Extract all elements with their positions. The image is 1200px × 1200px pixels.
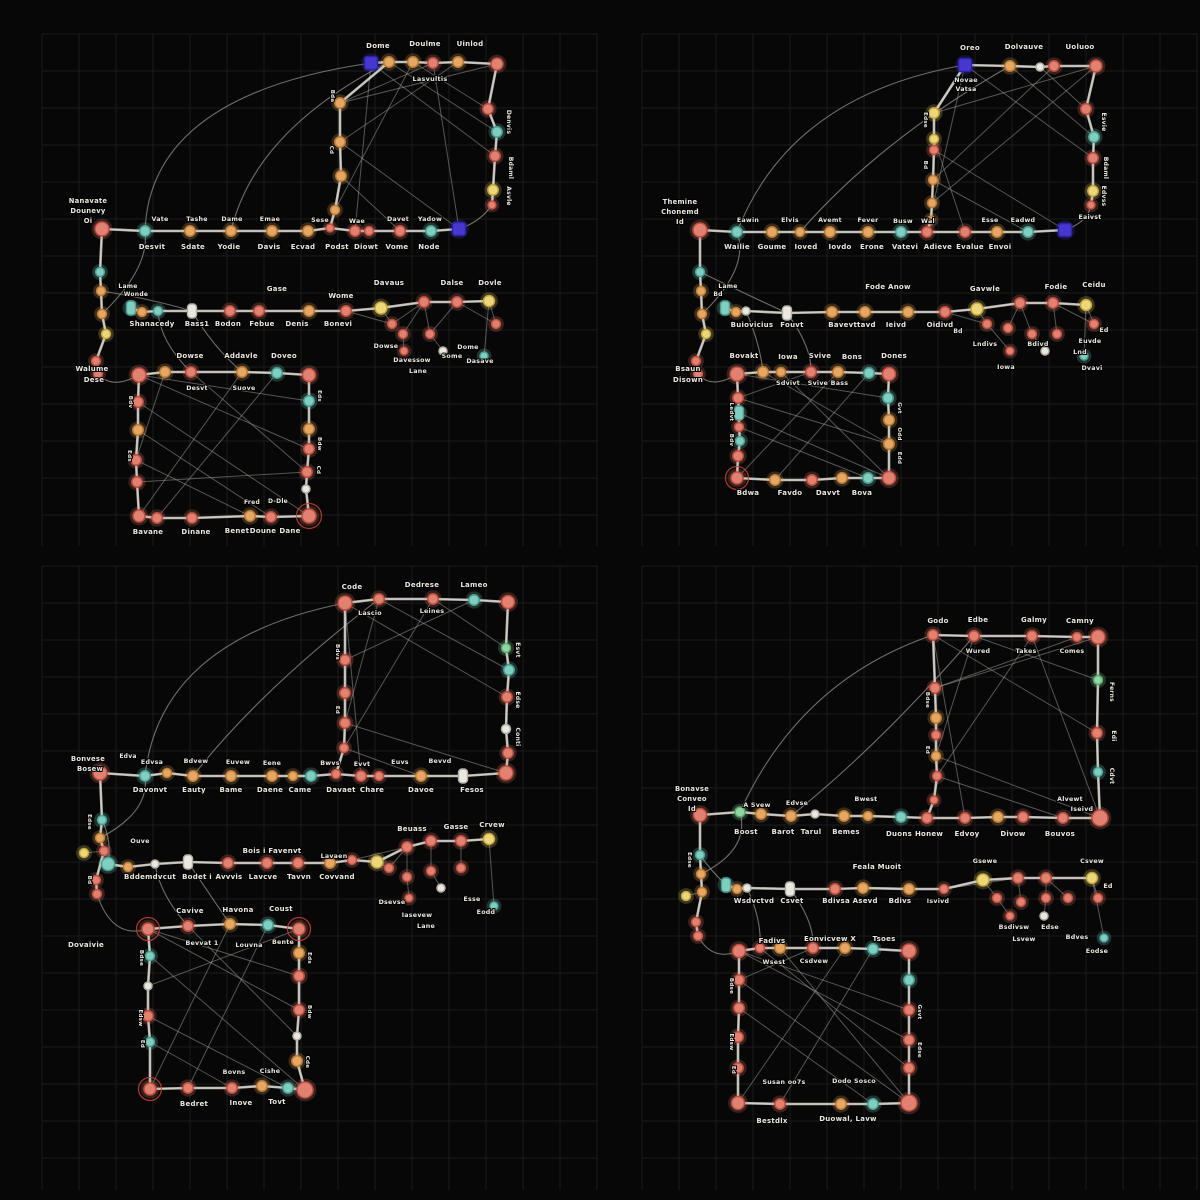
node-label: Some (442, 353, 463, 360)
station-node (399, 330, 408, 339)
station-node (227, 1083, 237, 1093)
node-label: Emae (260, 216, 280, 223)
station-node (133, 510, 145, 522)
node-label: Bavevttavd (828, 321, 875, 329)
station-node (896, 812, 906, 822)
station-node (294, 1005, 304, 1015)
node-label: Sdate (181, 243, 205, 251)
node-label: Sese (311, 217, 329, 224)
node-label: Bodet i (182, 873, 212, 881)
node-label: Chare (360, 786, 384, 794)
station-node (736, 437, 745, 446)
station-node (186, 367, 196, 377)
station-node-pill (188, 304, 197, 318)
node-label: Dounevy (70, 207, 106, 215)
node-label: Dodo Sosco (832, 1078, 876, 1085)
node-label: Odd (896, 427, 902, 440)
node-label: Cishe (260, 1068, 281, 1075)
node-label: Bd (86, 876, 92, 885)
node-label: Gvt (896, 402, 902, 414)
node-label: Bame (219, 786, 242, 794)
node-label: Vome (386, 243, 409, 251)
node-label: Bd (713, 291, 722, 298)
node-label: Esse (463, 896, 480, 903)
station-node (904, 884, 914, 894)
station-node (858, 883, 868, 893)
node-label: Divow (1000, 830, 1026, 838)
station-node (896, 227, 906, 237)
node-label: Gsvt (916, 1004, 922, 1019)
station-node (303, 369, 316, 382)
station-node (756, 809, 766, 819)
station-node (931, 713, 941, 723)
station-node (374, 594, 384, 604)
station-node (335, 137, 345, 147)
station-node (929, 176, 938, 185)
node-label: Isvivd (927, 898, 949, 905)
station-node (225, 919, 235, 929)
station-node (696, 268, 705, 277)
station-node (294, 971, 304, 981)
node-label: Nanavate (69, 197, 108, 205)
station-node (144, 982, 152, 990)
node-label: Bdivd (1027, 341, 1048, 348)
node-label: Envoi (989, 243, 1012, 251)
node-label: Dinane (181, 528, 210, 536)
node-label: Lame (718, 283, 737, 290)
station-node (226, 226, 236, 236)
node-label: Boost (734, 828, 758, 836)
node-label: Lasvultis (413, 75, 448, 83)
node-label: Bddemdvcut (124, 873, 176, 881)
station-node (226, 771, 236, 781)
node-label: Dsevse (379, 899, 406, 906)
node-label: Gasse (444, 823, 469, 831)
node-label: Eaivst (1078, 214, 1101, 221)
station-node (960, 813, 970, 823)
station-node (732, 308, 741, 317)
node-label: Bdw (316, 437, 322, 451)
node-label: Desvit (139, 243, 166, 251)
station-node (384, 57, 394, 67)
panel-bottom-left: CodeDedreseLameoLascioLeinesEsvtEdseCont… (42, 566, 598, 1190)
station-node (492, 127, 502, 137)
station-node (453, 57, 463, 67)
station-node (698, 888, 707, 897)
station-node (502, 692, 512, 702)
station-node (488, 185, 498, 195)
station-node (692, 918, 701, 927)
node-label: Bavane (133, 528, 164, 536)
station-node (733, 393, 743, 403)
node-label: Barot (772, 828, 795, 836)
station-node (860, 307, 870, 317)
node-label: A Svew (743, 802, 770, 809)
node-label: Godo (927, 617, 948, 625)
station-node (864, 812, 873, 821)
node-label: Svive (809, 352, 832, 360)
station-node (503, 748, 513, 758)
node-label: Bosew (77, 765, 104, 773)
station-node (257, 1081, 267, 1091)
station-node (734, 1003, 744, 1013)
station-node (469, 595, 479, 605)
node-label: Id (688, 805, 696, 813)
station-node (922, 813, 932, 823)
station-node (154, 307, 163, 316)
station-node (405, 894, 413, 902)
node-label: Fred (244, 499, 260, 506)
station-node (400, 347, 408, 355)
node-label: Bdivs (889, 897, 912, 905)
station-node-pill (735, 406, 744, 420)
station-node (1094, 768, 1103, 777)
node-label: Eodse (1086, 948, 1108, 955)
node-label: Evvt (354, 761, 371, 768)
node-label: Duons (886, 830, 912, 838)
station-node (304, 306, 314, 316)
node-label: Yodie (217, 243, 241, 251)
node-label: Fode Anow (865, 283, 911, 291)
station-node (777, 368, 786, 377)
node-label: Davvt (816, 489, 841, 497)
station-node-pill (783, 306, 792, 320)
station-node (428, 58, 438, 68)
grid-lines (642, 34, 1198, 546)
node-label: Dome (366, 42, 390, 50)
station-node (457, 864, 466, 873)
node-label: Fouvt (780, 321, 804, 329)
station-node (993, 894, 1002, 903)
node-label: Esse (981, 217, 998, 224)
node-label: Dese (84, 376, 104, 384)
node-label: Alvewt (1057, 796, 1083, 803)
node-label: Iovdo (828, 243, 851, 251)
node-label: Busw (893, 218, 913, 225)
station-node (146, 952, 155, 961)
station-node (730, 367, 744, 381)
node-label: Lndivs (973, 341, 998, 348)
node-label: Vatsa (955, 86, 976, 93)
station-node-pill (786, 882, 795, 896)
node-label: Tavvn (287, 873, 311, 881)
node-label: Cavive (176, 907, 204, 915)
node-label: Edvss (1100, 186, 1107, 207)
node-label: Duowal, Lavw (819, 1115, 877, 1123)
station-node (504, 665, 514, 675)
node-label: Bonvese (71, 755, 105, 763)
station-node (293, 1032, 301, 1040)
node-label: Ceidu (1082, 281, 1106, 289)
station-node (903, 307, 913, 317)
node-label: Goume (758, 243, 787, 251)
station-node (502, 644, 511, 653)
station-node (402, 842, 412, 852)
node-label: Fadivs (759, 937, 786, 945)
station-node (732, 227, 742, 237)
station-node (833, 367, 843, 377)
node-label: Dame (221, 216, 242, 223)
station-node (1041, 873, 1051, 883)
station-node (1006, 912, 1014, 920)
station-node (901, 1095, 917, 1111)
node-label: Diowt (354, 243, 378, 251)
node-label: Doulme (409, 40, 441, 48)
station-node (263, 920, 273, 930)
station-node (223, 858, 233, 868)
node-label: Fesos (460, 786, 484, 794)
node-label: Edsw (728, 1033, 734, 1050)
node-label: Iasevew (402, 912, 433, 919)
node-label: Esvie (1100, 113, 1107, 132)
station-node (1087, 201, 1095, 209)
station-node (491, 58, 503, 70)
node-label: Edse (686, 852, 692, 868)
node-label: Lavcve (249, 873, 278, 881)
node-label: Bdse (728, 978, 734, 994)
node-label: Node (418, 243, 439, 251)
station-node (140, 226, 150, 236)
station-node (932, 731, 941, 740)
node-label: Ed (924, 746, 930, 754)
node-label: Bons (842, 353, 862, 361)
station-node (836, 1099, 846, 1109)
node-label: Wae (349, 218, 365, 225)
node-label: Euvs (391, 759, 409, 766)
node-label: Eds (126, 450, 132, 462)
node-label: Wsdvctvd (734, 897, 775, 905)
station-node (341, 306, 351, 316)
node-label: Febue (249, 320, 274, 328)
node-label: Sdvivt (776, 380, 800, 387)
station-node (302, 467, 312, 477)
station-node (303, 226, 313, 236)
station-node (98, 816, 107, 825)
station-node (733, 945, 746, 958)
station-node (304, 396, 314, 406)
node-label: Susan oo7s (763, 1079, 806, 1086)
station-node (403, 873, 412, 882)
station-node (864, 368, 874, 378)
station-node-square (959, 59, 972, 72)
station-node (140, 771, 150, 781)
station-node (426, 330, 435, 339)
panel-top-left: DomeDoulmeUinlodLasvultisNanavateDounevy… (42, 34, 598, 546)
station-node (993, 812, 1003, 822)
node-label: Csdvew (800, 958, 829, 965)
station-node (1040, 912, 1048, 920)
node-label: Edd (896, 452, 902, 464)
station-node (144, 1083, 156, 1095)
node-label: Conveo (677, 795, 707, 803)
station-node (933, 772, 942, 781)
station-node (904, 1005, 914, 1015)
station-node (1088, 186, 1098, 196)
station-node (930, 683, 940, 693)
station-node (348, 856, 357, 865)
nodes (88, 53, 506, 528)
node-label: Takes (1015, 648, 1036, 655)
station-node (340, 744, 349, 753)
station-node-pill (184, 855, 193, 869)
station-node (490, 151, 500, 161)
node-label: Id (676, 218, 684, 226)
node-label: Edi (1110, 730, 1117, 741)
station-node (682, 892, 691, 901)
node-label: Oreo (960, 44, 980, 52)
node-label: Favdo (778, 489, 803, 497)
station-node (93, 890, 102, 899)
node-label: Eene (263, 760, 281, 767)
station-node (304, 444, 314, 454)
node-label: Eonvicvew X (804, 935, 856, 943)
node-label: Eadwd (1011, 217, 1036, 224)
node-label: Suove (233, 385, 256, 392)
station-node (1090, 320, 1099, 329)
node-label: Oidivd (927, 321, 954, 329)
edges (96, 62, 497, 518)
node-label: Bsaun (675, 365, 700, 373)
station-node (188, 771, 198, 781)
node-label: Bdivsa Asevd (822, 897, 878, 905)
station-node (138, 308, 147, 317)
node-label: Ecvad (291, 243, 315, 251)
node-label: Cd (315, 466, 321, 474)
station-node (143, 1011, 153, 1021)
station-node (426, 226, 436, 236)
node-label: Shanacedy (129, 320, 174, 328)
station-node (1094, 894, 1103, 903)
node-label: Davet (387, 216, 409, 223)
graph-canvas: DomeDoulmeUinlodLasvultisNanavateDounevy… (0, 0, 1200, 1200)
station-node (904, 1035, 914, 1045)
station-node (452, 297, 462, 307)
node-label: Bdvew (184, 758, 209, 765)
station-node (1091, 630, 1105, 644)
node-label: Lsvew (1012, 936, 1035, 943)
station-node (102, 330, 111, 339)
station-node-pill (721, 301, 730, 315)
station-node (839, 811, 849, 821)
node-label: Doune (250, 527, 277, 535)
station-node (1005, 61, 1015, 71)
node-label: Bente (272, 939, 294, 946)
node-label: Bass1 (185, 320, 210, 328)
station-node (969, 631, 979, 641)
node-label: Wured (966, 648, 991, 655)
station-node (1015, 298, 1025, 308)
node-label: Disown (673, 376, 703, 384)
station-node (484, 834, 495, 845)
station-node (395, 226, 405, 236)
node-label: Buiovicius (731, 321, 774, 329)
station-node-pill (722, 878, 731, 892)
station-node (786, 811, 796, 821)
station-node (1087, 873, 1098, 884)
station-node (1094, 676, 1103, 685)
station-node (697, 870, 706, 879)
node-label: Conti (514, 728, 521, 747)
node-label: Cdvt (1108, 768, 1115, 784)
node-label: Dowse (176, 352, 203, 360)
station-node (302, 485, 310, 493)
station-node (868, 944, 878, 954)
labels: CodeDedreseLameoLascioLeinesEsvtEdseCont… (68, 581, 521, 1108)
node-label: Edse (922, 112, 928, 128)
node-label: Lame (118, 283, 137, 290)
node-label: Daene (257, 786, 283, 794)
node-label: Csvew (1080, 858, 1104, 865)
station-node (743, 884, 751, 892)
node-label: Beuass (397, 825, 427, 833)
node-label: Dane (279, 527, 300, 535)
node-label: Davessow (393, 357, 431, 364)
station-node-pill (459, 769, 468, 783)
node-label: Dolvauve (1005, 43, 1044, 51)
station-node (293, 923, 305, 935)
station-node (484, 296, 495, 307)
station-node (796, 228, 805, 237)
node-label: Esvt (514, 642, 521, 657)
station-node (499, 766, 513, 780)
station-node (1004, 324, 1013, 333)
station-node (863, 473, 873, 483)
node-label: Louvna (235, 942, 262, 949)
station-node (1013, 873, 1023, 883)
node-label: Iowa (778, 353, 798, 361)
station-node (427, 867, 436, 876)
node-label: Bsdivsw (999, 924, 1030, 931)
station-node (365, 227, 374, 236)
station-node (733, 885, 742, 894)
node-label: Bdw (306, 1005, 312, 1019)
node-label: Edbe (968, 616, 989, 624)
station-node (868, 1099, 878, 1109)
node-label: Ed (1103, 883, 1112, 890)
station-node (340, 655, 350, 665)
node-label: Avvvis (216, 873, 243, 881)
station-node (971, 303, 983, 315)
node-label: Dasave (466, 358, 493, 365)
station-node (102, 858, 115, 871)
node-label: Denvis (505, 110, 512, 135)
station-node (336, 171, 346, 181)
node-label: Wsest (763, 959, 786, 966)
node-label: Benet (225, 527, 250, 535)
station-node (297, 1082, 313, 1098)
node-label: Bodon (215, 320, 241, 328)
node-label: Tsoes (873, 935, 896, 943)
station-node (697, 287, 706, 296)
station-node (183, 1083, 193, 1093)
node-label: Eauty (182, 786, 206, 794)
node-label: Dovaivie (68, 941, 104, 949)
node-label: Bda (329, 90, 335, 103)
node-label: Bd (953, 328, 962, 335)
station-node (385, 864, 394, 873)
station-node (825, 227, 835, 237)
node-label: Bdaml (1102, 157, 1109, 179)
station-node (98, 310, 107, 319)
station-node (1041, 347, 1049, 355)
station-node (702, 330, 711, 339)
station-node (904, 975, 914, 985)
node-label: Crvew (479, 821, 505, 829)
node-label: Podst (325, 243, 349, 251)
node-label: Covvand (319, 873, 355, 881)
station-node (132, 368, 146, 382)
station-node (388, 320, 397, 329)
